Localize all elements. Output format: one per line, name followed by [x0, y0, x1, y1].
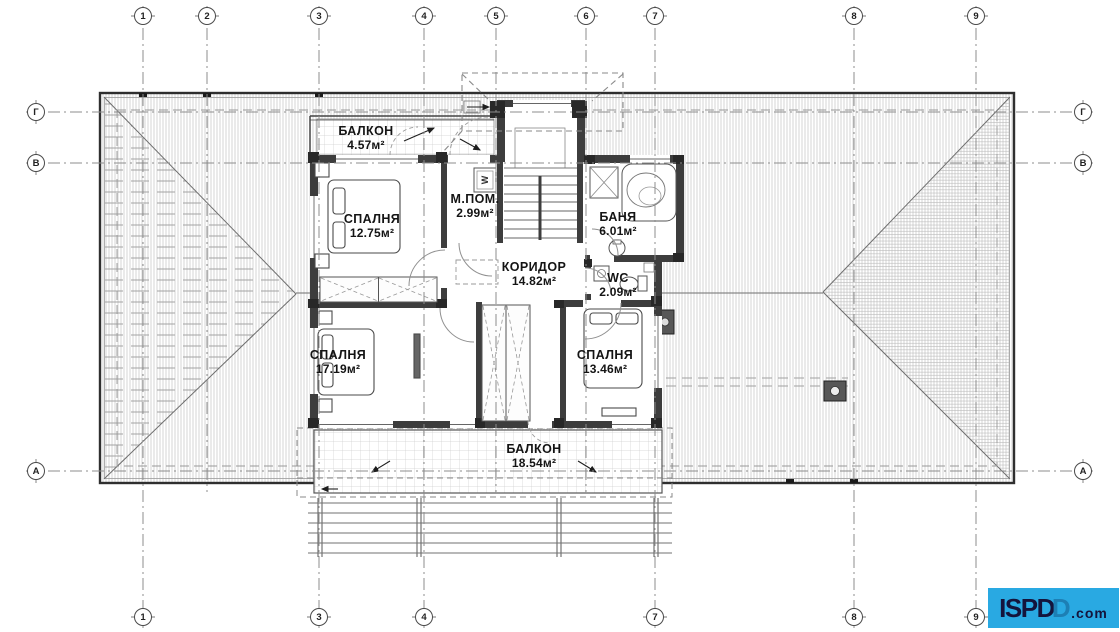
room-name: СПАЛНЯ — [344, 212, 400, 226]
grid-bubble-bottom-4: 4 — [415, 608, 433, 626]
grid-bubble-top-2: 2 — [198, 7, 216, 25]
room-area: 14.82м² — [502, 274, 566, 288]
grid-bubble-bottom-7: 7 — [646, 608, 664, 626]
grid-bubble-right-g: Г — [1074, 103, 1092, 121]
room-name: БАНЯ — [599, 210, 636, 224]
room-name: СПАЛНЯ — [577, 348, 633, 362]
grid-bubble-top-6: 6 — [577, 7, 595, 25]
grid-bubble-top-9: 9 — [967, 7, 985, 25]
room-name: КОРИДОР — [502, 260, 566, 274]
room-name: WC — [599, 271, 636, 285]
grid-bubble-top-8: 8 — [845, 7, 863, 25]
grid-bubble-top-3: 3 — [310, 7, 328, 25]
balcony-bottom — [297, 428, 672, 497]
room-label-wc: WC 2.09м² — [599, 271, 636, 299]
room-area: 12.75м² — [344, 226, 400, 240]
room-label-bedroom-1275: СПАЛНЯ 12.75м² — [344, 212, 400, 240]
room-area: 2.09м² — [599, 285, 636, 299]
room-name: БАЛКОН — [506, 442, 561, 456]
room-area: 17.19м² — [310, 362, 366, 376]
grid-bubble-top-7: 7 — [646, 7, 664, 25]
grid-bubble-bottom-3: 3 — [310, 608, 328, 626]
room-area: 6.01м² — [599, 224, 636, 238]
roof-skylight — [824, 381, 846, 401]
room-label-balcony-bottom: БАЛКОН 18.54м² — [506, 442, 561, 470]
room-name: БАЛКОН — [338, 124, 393, 138]
logo-suffix-text: .com — [1071, 605, 1108, 621]
grid-bubble-right-v: В — [1074, 154, 1092, 172]
grid-bubble-left-a: А — [27, 462, 45, 480]
room-name: М.ПОМ. — [451, 192, 500, 206]
grid-bubble-top-5: 5 — [487, 7, 505, 25]
logo-ispd: ISPDD.com — [988, 588, 1119, 628]
floor-plan-page: БАЛКОН 4.57м² СПАЛНЯ 12.75м² М.ПОМ. 2.99… — [0, 0, 1120, 632]
room-label-utility: М.ПОМ. 2.99м² — [451, 192, 500, 220]
grid-bubble-top-1: 1 — [134, 7, 152, 25]
grid-bubble-left-g: Г — [27, 103, 45, 121]
room-area: 2.99м² — [451, 206, 500, 220]
room-area: 18.54м² — [506, 456, 561, 470]
washing-machine-label: W — [480, 176, 490, 185]
room-label-balcony-top: БАЛКОН 4.57м² — [338, 124, 393, 152]
grid-bubble-left-v: В — [27, 154, 45, 172]
floor-plan-drawing — [0, 0, 1120, 632]
room-name: СПАЛНЯ — [310, 348, 366, 362]
grid-bubble-bottom-1: 1 — [134, 608, 152, 626]
room-area: 4.57м² — [338, 138, 393, 152]
room-label-corridor: КОРИДОР 14.82м² — [502, 260, 566, 288]
logo-brand-text: ISPD — [999, 595, 1054, 621]
grid-bubble-bottom-9: 9 — [967, 608, 985, 626]
pergola — [308, 498, 672, 557]
grid-bubble-bottom-8: 8 — [845, 608, 863, 626]
room-label-bath: БАНЯ 6.01м² — [599, 210, 636, 238]
logo-outline-letter: D — [1052, 595, 1069, 621]
room-area: 13.46м² — [577, 362, 633, 376]
room-label-bedroom-1346: СПАЛНЯ 13.46м² — [577, 348, 633, 376]
pergola-posts — [318, 498, 658, 557]
grid-bubble-right-a: А — [1074, 462, 1092, 480]
grid-bubble-top-4: 4 — [415, 7, 433, 25]
room-label-bedroom-1719: СПАЛНЯ 17.19м² — [310, 348, 366, 376]
